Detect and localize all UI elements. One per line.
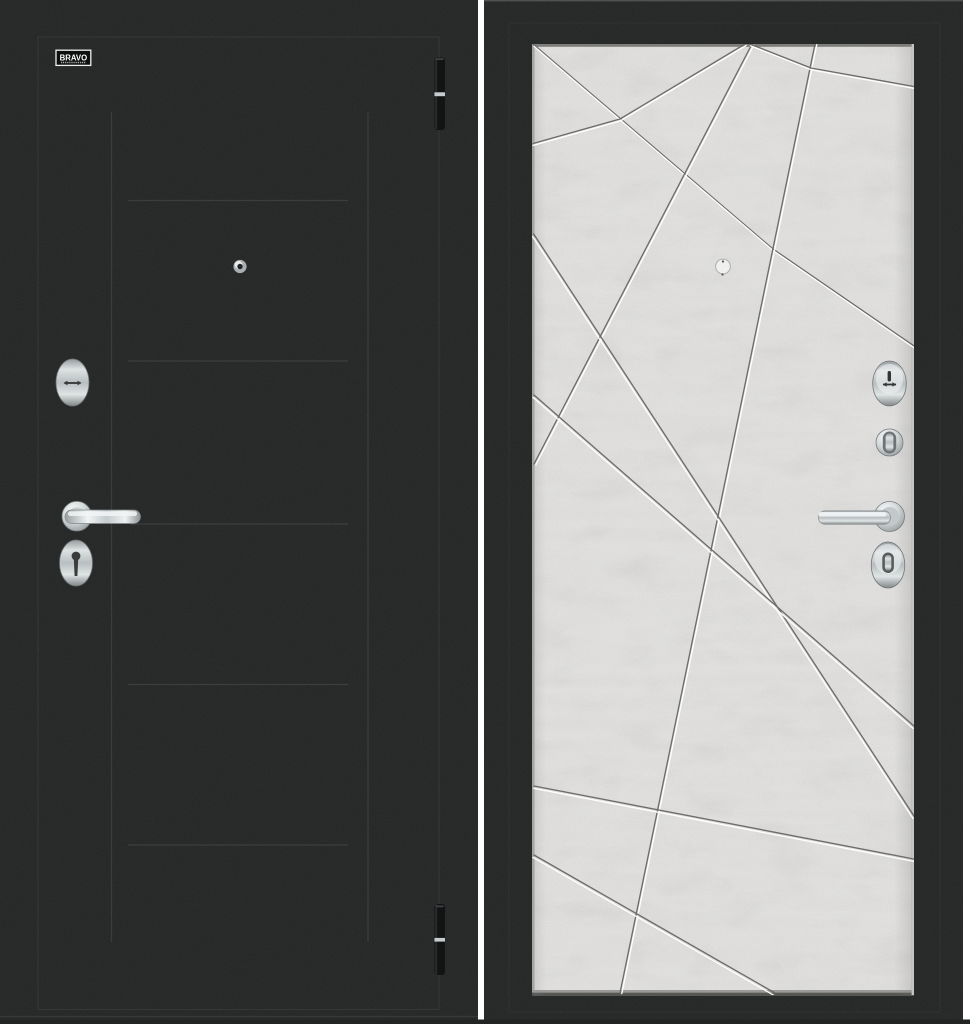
svg-text:BRAVO: BRAVO xyxy=(60,53,88,62)
